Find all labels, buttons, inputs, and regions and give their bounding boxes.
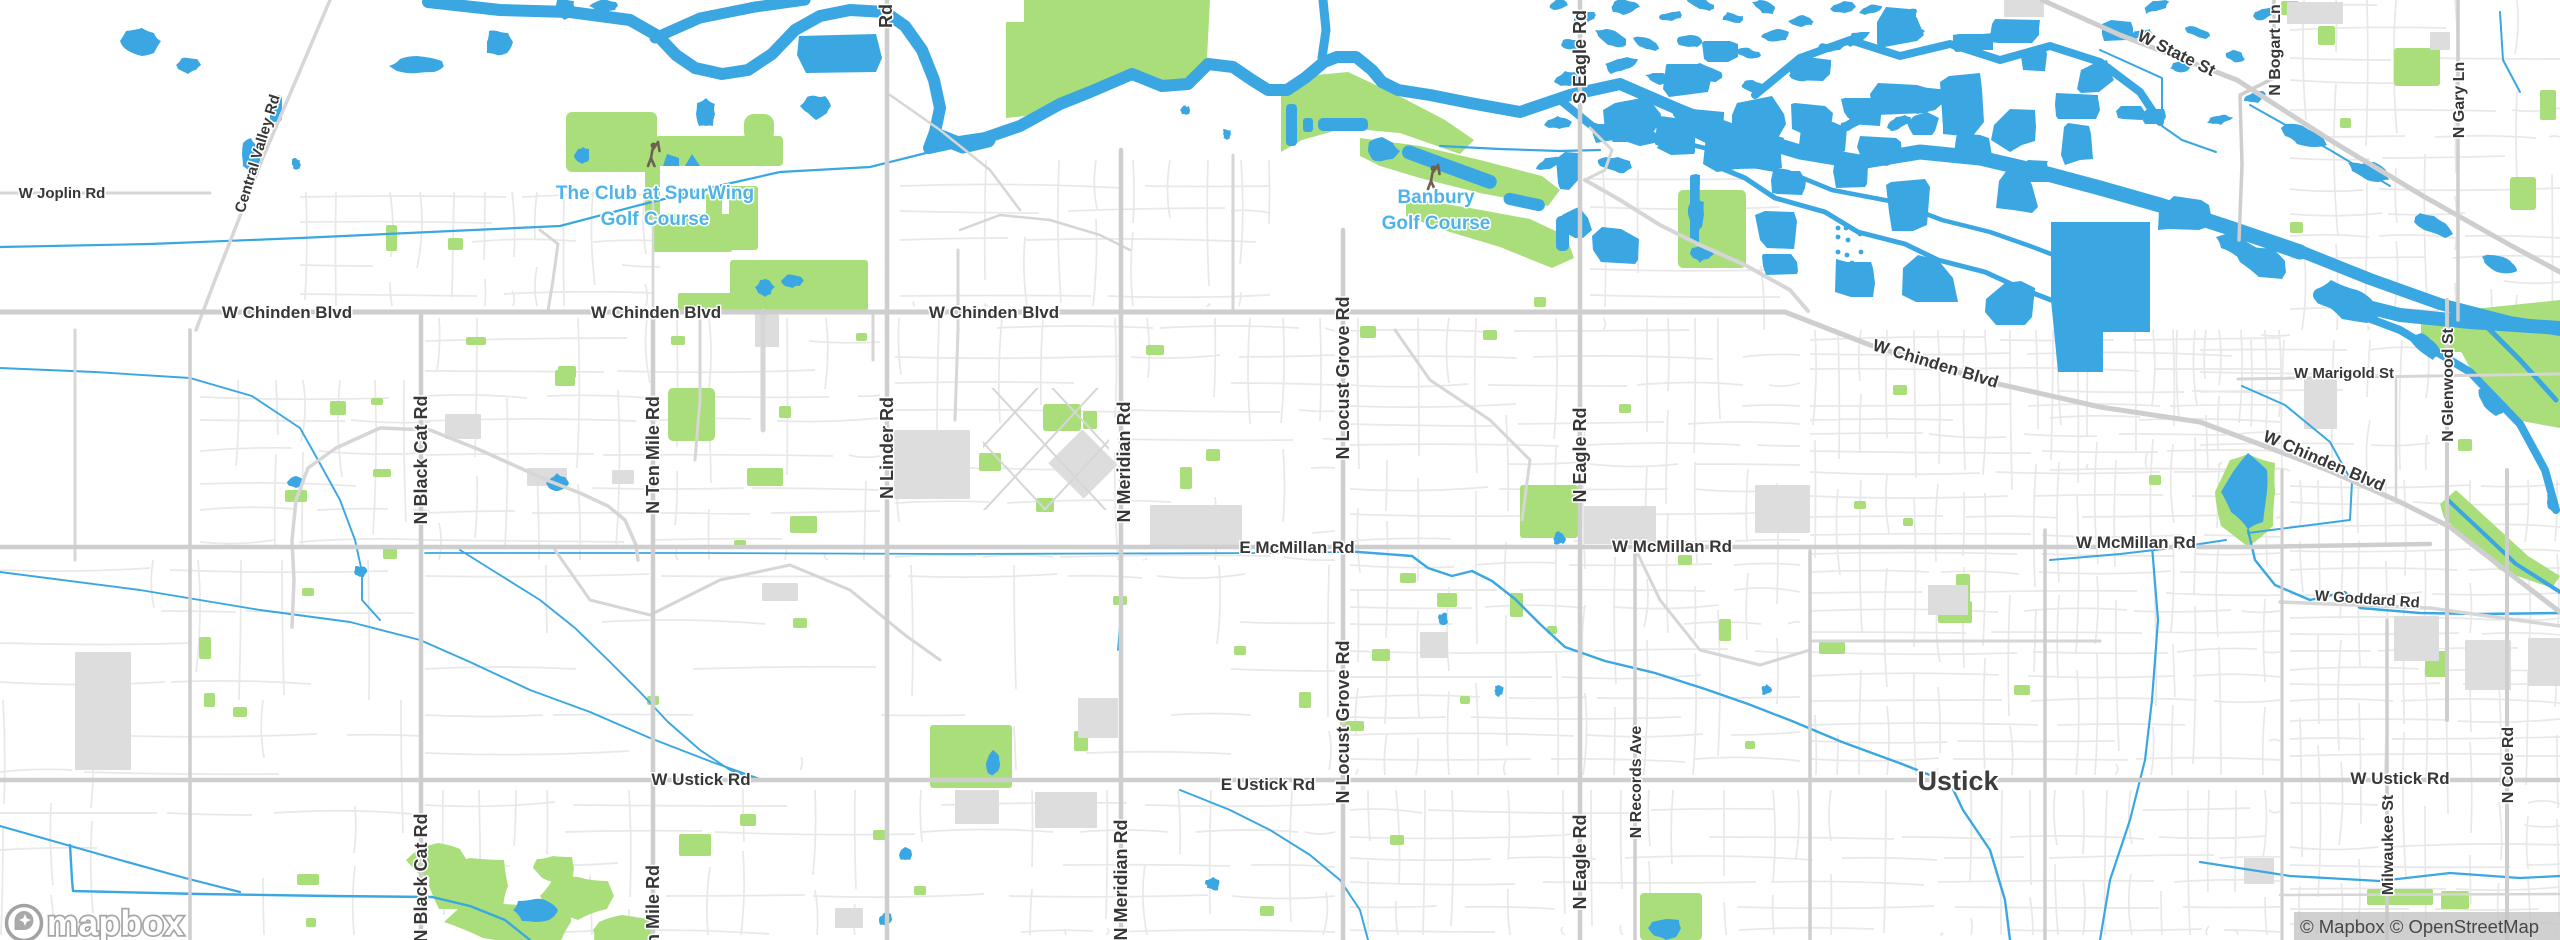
svg-text:mapbox: mapbox — [47, 904, 184, 940]
svg-text:N Glenwood St: N Glenwood St — [2440, 327, 2457, 441]
svg-text:S Eagle Rd: S Eagle Rd — [1570, 10, 1590, 104]
svg-text:N Eagle Rd: N Eagle Rd — [1570, 814, 1590, 909]
svg-text:n Mile Rd: n Mile Rd — [643, 865, 663, 940]
svg-text:W Chinden Blvd: W Chinden Blvd — [591, 303, 721, 322]
svg-text:W Ustick Rd: W Ustick Rd — [651, 770, 750, 789]
svg-text:E Ustick Rd: E Ustick Rd — [1221, 775, 1315, 794]
svg-text:N Black Cat Rd: N Black Cat Rd — [411, 395, 431, 524]
svg-text:E McMillan Rd: E McMillan Rd — [1239, 538, 1354, 557]
svg-text:N Eagle Rd: N Eagle Rd — [1570, 407, 1590, 502]
svg-text:Golf Course: Golf Course — [601, 209, 710, 230]
svg-text:W Chinden Blvd: W Chinden Blvd — [222, 303, 352, 322]
svg-text:N Locust Grove Rd: N Locust Grove Rd — [1333, 296, 1353, 459]
svg-text:Golf Course: Golf Course — [1382, 213, 1491, 234]
svg-text:Rd: Rd — [876, 4, 896, 28]
svg-text:N Meridian Rd: N Meridian Rd — [1114, 401, 1134, 522]
svg-text:N Gary Ln: N Gary Ln — [2451, 62, 2468, 138]
svg-text:N Black Cat Rd: N Black Cat Rd — [411, 813, 431, 940]
svg-text:Ustick: Ustick — [1917, 766, 1999, 796]
svg-text:The Club at SpurWing: The Club at SpurWing — [556, 183, 754, 204]
svg-text:N Meridian Rd: N Meridian Rd — [1111, 819, 1131, 940]
svg-text:N Linder Rd: N Linder Rd — [877, 397, 897, 499]
svg-text:W Joplin Rd: W Joplin Rd — [19, 185, 106, 202]
svg-text:N Records Ave: N Records Ave — [1628, 726, 1645, 839]
svg-text:© Mapbox © OpenStreetMap: © Mapbox © OpenStreetMap — [2300, 916, 2539, 937]
svg-text:N Cole Rd: N Cole Rd — [2500, 727, 2517, 803]
svg-text:Banbury: Banbury — [1397, 187, 1475, 208]
svg-text:W Marigold St: W Marigold St — [2294, 365, 2394, 382]
svg-text:N Ten Mile Rd: N Ten Mile Rd — [643, 396, 663, 514]
svg-text:N Bogart Ln: N Bogart Ln — [2267, 4, 2284, 96]
svg-text:W McMillan Rd: W McMillan Rd — [1612, 537, 1732, 556]
svg-text:W Ustick Rd: W Ustick Rd — [2350, 769, 2449, 788]
svg-text:N Locust Grove Rd: N Locust Grove Rd — [1333, 640, 1353, 803]
svg-text:W McMillan Rd: W McMillan Rd — [2076, 533, 2196, 552]
svg-text:Milwaukee St: Milwaukee St — [2380, 794, 2397, 895]
svg-text:W Chinden Blvd: W Chinden Blvd — [929, 303, 1059, 322]
